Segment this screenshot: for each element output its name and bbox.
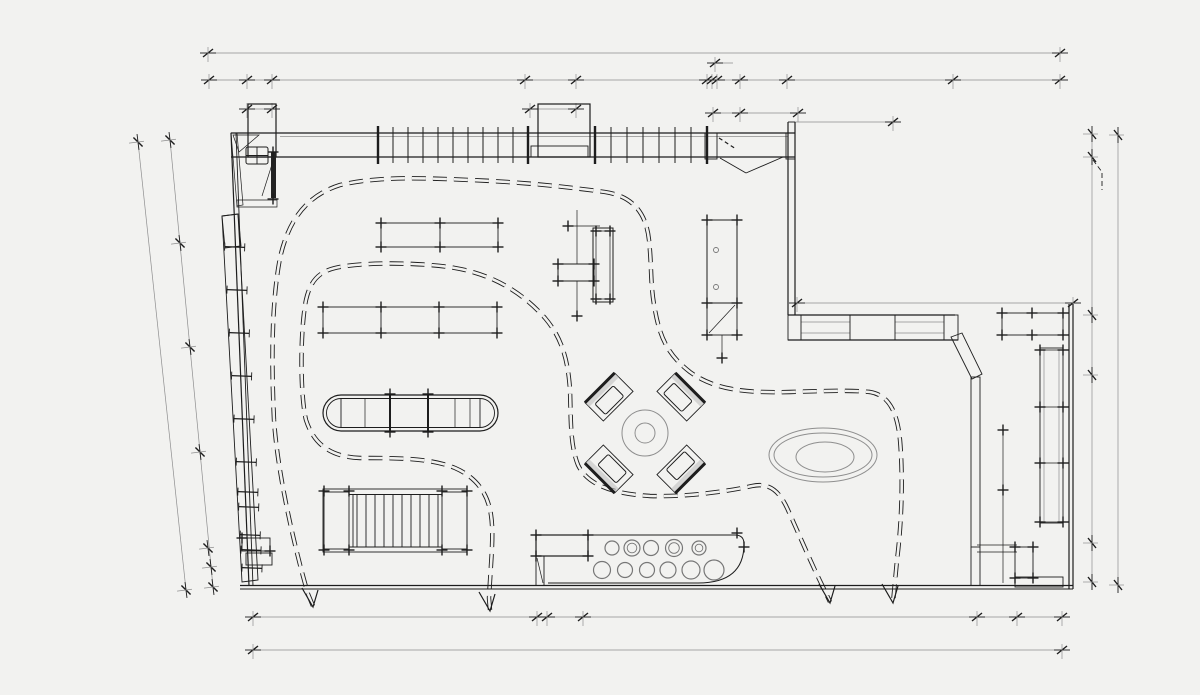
column-circle-inner	[635, 423, 655, 443]
stool-circle	[618, 563, 633, 578]
dim-tick	[170, 234, 187, 252]
dim-tick	[732, 107, 748, 122]
wing-pier-left	[788, 315, 801, 340]
stool-circle	[666, 540, 683, 557]
flow-path-outer-core	[272, 178, 901, 606]
display-table-b	[318, 302, 503, 339]
dim-tick	[180, 338, 197, 356]
dim-tick	[517, 74, 533, 89]
left-wall-shelving	[222, 214, 276, 582]
dim-tick	[1083, 126, 1098, 142]
stool-circle	[640, 563, 655, 578]
dim-tick	[568, 74, 584, 89]
dim-tick	[1054, 644, 1070, 659]
right-dim-leader	[1093, 160, 1102, 190]
dim-tick	[1009, 611, 1025, 626]
x-seating-group	[585, 373, 705, 493]
stool-circle	[624, 540, 640, 556]
right-wall-displays	[997, 308, 1069, 584]
dim-tick	[245, 644, 261, 659]
lounger-ne	[657, 373, 705, 421]
dim-tick	[203, 578, 220, 596]
entrance-door-leaf-a	[720, 158, 746, 173]
dim-tick	[885, 116, 901, 131]
column-mid	[538, 104, 590, 157]
right-wall-shelf	[1040, 348, 1063, 523]
dim-tick	[575, 611, 591, 626]
stool-circle	[594, 562, 611, 579]
counter-hatch-block	[536, 535, 588, 556]
dim-tick	[705, 107, 721, 122]
garment-rack	[319, 486, 473, 556]
lounger-sw	[585, 445, 633, 493]
column-circle-outer	[622, 410, 668, 456]
shelf-rung	[239, 503, 259, 512]
dim-tick	[1052, 47, 1068, 62]
dim-tick	[176, 581, 193, 599]
dim-tick	[790, 107, 806, 122]
dim-tick	[1083, 367, 1098, 383]
lounger-nw	[585, 373, 633, 421]
dim-tick	[1083, 535, 1098, 551]
dim-tick	[1052, 74, 1068, 89]
dim-tick	[732, 74, 748, 89]
dim-tick	[200, 47, 216, 62]
dim-tick	[239, 103, 255, 118]
dim-tick	[1083, 574, 1098, 590]
dim-tick	[1083, 307, 1098, 323]
entrance-door-leaf-dashed	[719, 138, 736, 149]
dim-tick	[264, 74, 280, 89]
dim-line-slanted	[138, 142, 186, 590]
dim-tick	[707, 57, 723, 72]
shelf-rung	[225, 243, 245, 252]
garment-rack-end-left	[324, 492, 349, 549]
dim-tick	[1109, 127, 1124, 143]
wall-bench-b	[246, 553, 272, 565]
shelf-rung	[238, 488, 258, 497]
dim-tick	[1054, 611, 1070, 626]
flow-arrow-tip	[479, 592, 495, 611]
stool-circle	[660, 562, 676, 578]
display-table-a	[376, 218, 504, 253]
dim-tick	[789, 297, 805, 312]
dim-tick	[264, 103, 280, 118]
dimension-lines	[128, 47, 1124, 659]
dim-tick	[201, 74, 217, 89]
fitting-wall-vertical	[971, 377, 980, 547]
dim-tick	[969, 611, 985, 626]
shelf-rung	[231, 372, 251, 381]
shelf-rung	[236, 458, 256, 467]
stool-circle	[644, 541, 659, 556]
dim-tick	[1109, 577, 1124, 593]
stool-circle	[682, 561, 700, 579]
dim-tick	[529, 611, 545, 626]
dim-tick	[198, 539, 215, 557]
dim-tick	[160, 131, 177, 149]
dim-tick	[945, 74, 961, 89]
lounger-se	[657, 445, 705, 493]
floor-plan-canvas	[0, 0, 1200, 695]
shelf-rung	[234, 415, 254, 424]
dim-tick	[704, 74, 720, 89]
dim-tick	[128, 133, 145, 151]
wing-hatch-block	[850, 315, 895, 340]
dim-tick	[699, 74, 715, 89]
stool-circle	[692, 541, 706, 555]
curtain-wall-mullions	[373, 126, 712, 164]
dim-tick	[568, 103, 584, 118]
wing-pier-right	[944, 315, 958, 340]
right-wall-cabinet-small	[1015, 547, 1033, 578]
column-mid-sill-hatch	[531, 146, 588, 157]
dim-tick	[190, 443, 207, 461]
flow-arrows	[302, 584, 898, 611]
dim-tick	[245, 611, 261, 626]
dim-tick	[1083, 149, 1098, 165]
entrance-door-leaf-b	[746, 157, 783, 173]
entrance-corner-hatch	[786, 133, 795, 159]
dim-tick	[239, 74, 255, 89]
shelf-body	[222, 214, 258, 582]
stool-circle-inner	[669, 543, 680, 554]
island-pill-table	[323, 389, 498, 438]
stool-circle-inner	[695, 544, 703, 552]
garment-rack-end-right	[442, 492, 467, 549]
left-shelf-rungs	[225, 243, 263, 573]
dim-tick	[779, 74, 795, 89]
counter-stools	[594, 540, 725, 581]
dim-tick	[522, 103, 538, 118]
cross-display-fixture	[553, 210, 616, 322]
service-counter	[531, 528, 750, 586]
dim-tick	[201, 558, 218, 576]
oval-rug	[769, 428, 877, 482]
cross-display-hatch-block	[558, 264, 594, 281]
dim-line-slanted	[170, 140, 213, 587]
stool-circle	[605, 541, 619, 555]
stool-circle	[704, 560, 724, 580]
stool-circle-inner	[627, 543, 637, 553]
tall-display-cabinet	[702, 215, 743, 364]
